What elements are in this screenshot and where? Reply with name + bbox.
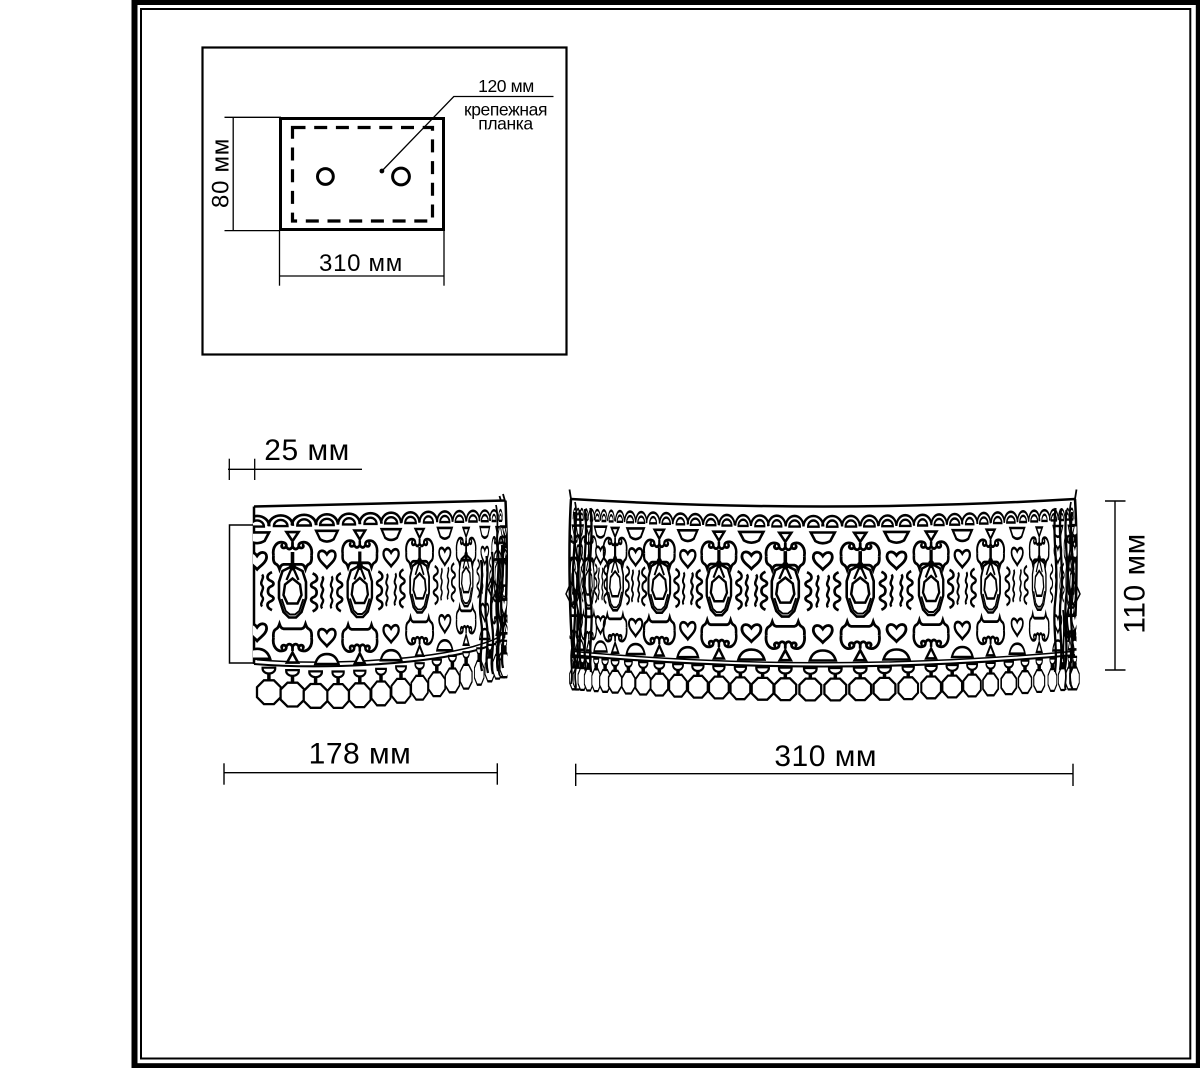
svg-text:планка: планка [478, 114, 533, 134]
svg-text:310 мм: 310 мм [774, 740, 877, 773]
svg-text:110 мм: 110 мм [1119, 533, 1152, 633]
svg-text:120 мм: 120 мм [478, 76, 534, 96]
svg-text:178 мм: 178 мм [309, 738, 412, 771]
svg-text:310 мм: 310 мм [319, 250, 403, 277]
svg-text:80 мм: 80 мм [208, 138, 235, 208]
svg-text:25 мм: 25 мм [264, 434, 349, 467]
